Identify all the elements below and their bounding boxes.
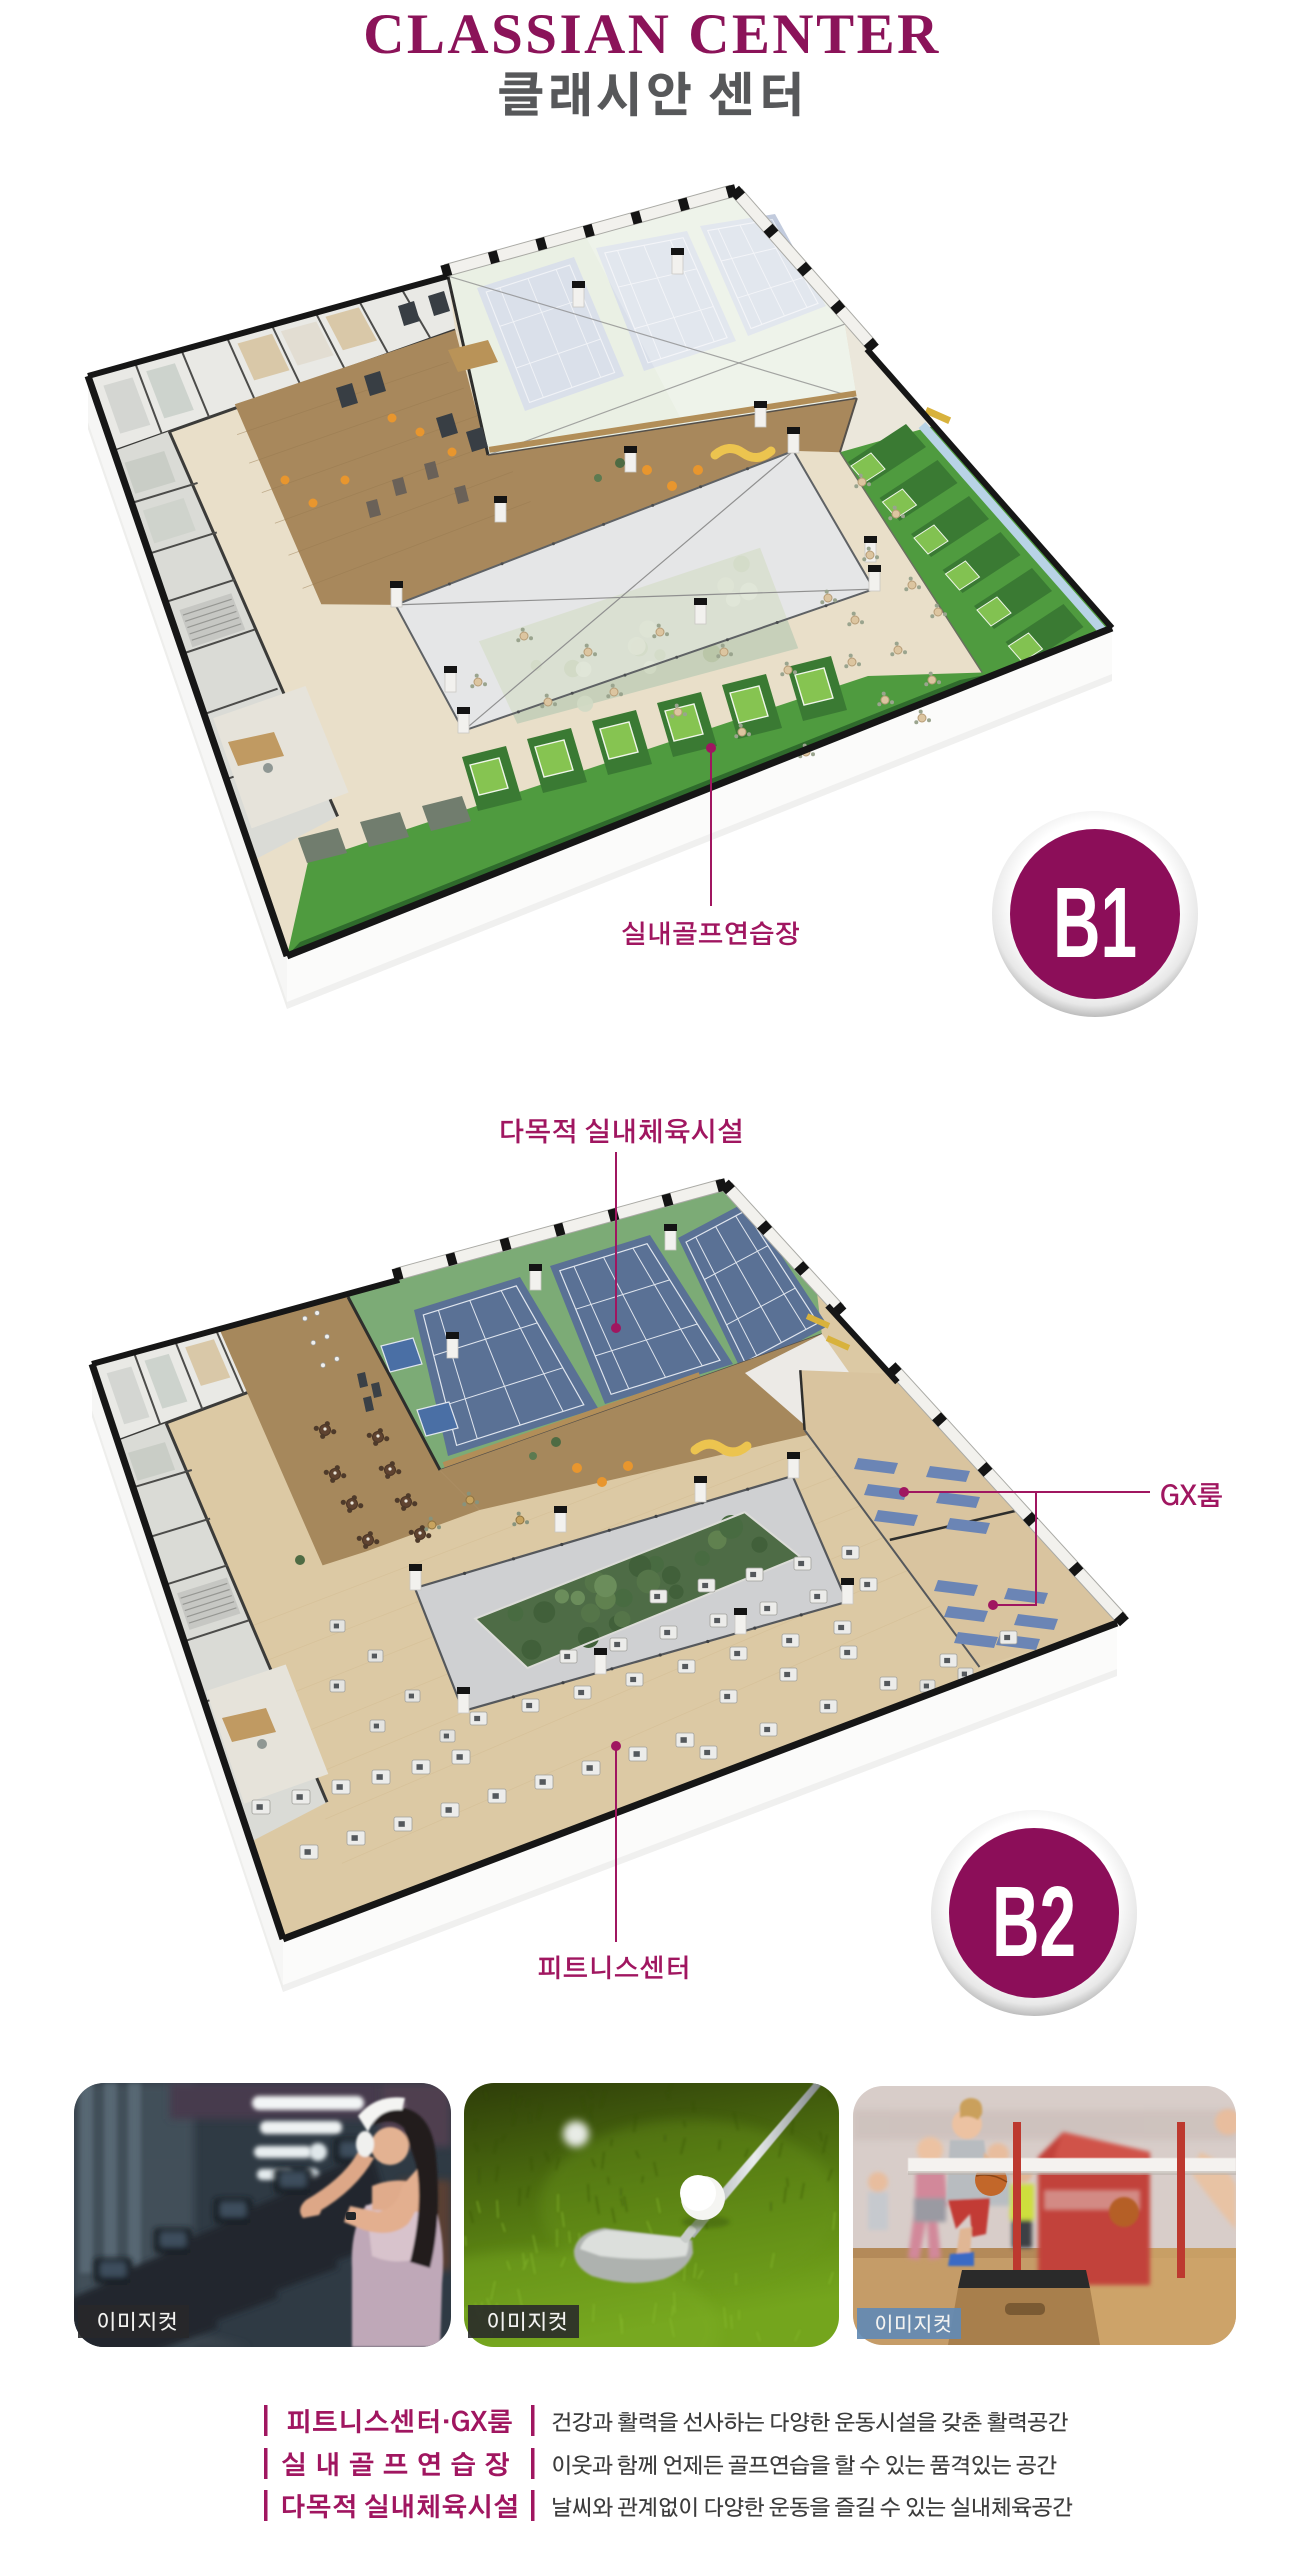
svg-text:B1: B1 <box>1053 867 1137 979</box>
svg-text:CLASSIAN CENTER: CLASSIAN CENTER <box>363 3 941 66</box>
svg-text:B2: B2 <box>992 1866 1076 1978</box>
